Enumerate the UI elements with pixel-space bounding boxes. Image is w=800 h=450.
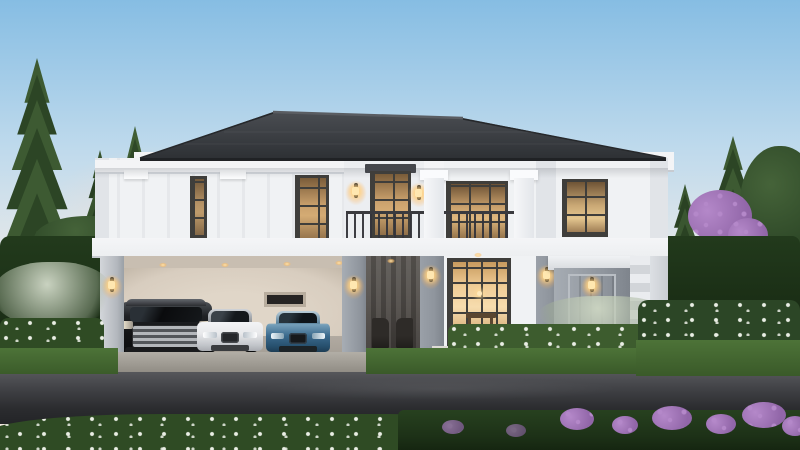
entrance-sconce xyxy=(425,266,437,288)
carport-roof-band xyxy=(92,238,668,258)
porch-chair xyxy=(396,318,413,348)
wall-sconce-light xyxy=(350,182,362,204)
sedan-headlight xyxy=(271,333,284,339)
porch-chair xyxy=(372,318,389,348)
upper-window-narrow xyxy=(190,176,207,240)
side-door-sconce xyxy=(586,276,598,298)
sedan-headlight xyxy=(203,332,217,338)
white-flowering-shrubs-right xyxy=(638,300,800,340)
carport-pillar-lantern xyxy=(348,276,360,298)
hipped-roof xyxy=(124,100,680,162)
plume-grass-left xyxy=(0,262,112,326)
sedan-grille xyxy=(289,333,307,344)
carport-ceiling-downlight xyxy=(220,262,230,268)
purple-flower-cluster xyxy=(506,424,526,437)
van-chrome-grille xyxy=(132,325,202,348)
purple-flower-cluster xyxy=(442,420,464,434)
purple-flower-cluster xyxy=(652,406,692,430)
pendant-light-silhouette xyxy=(477,291,482,296)
purple-flower-cluster xyxy=(560,408,594,430)
foreground-grass-white-flowers xyxy=(0,414,424,450)
lawn-left xyxy=(0,348,118,374)
road-sheen xyxy=(260,378,620,400)
purple-flower-cluster xyxy=(742,402,786,428)
purple-flower-cluster xyxy=(612,416,638,434)
sedan-headlight xyxy=(312,333,325,339)
carport-ceiling-downlight xyxy=(282,261,292,267)
sedan-grille xyxy=(221,332,239,343)
upper-window-left-wing xyxy=(295,175,329,246)
carport-ceiling-downlight xyxy=(158,262,168,268)
scene-luxury-house-render xyxy=(0,0,800,450)
lawn-right xyxy=(636,340,800,376)
carport-back-window xyxy=(264,292,306,307)
purple-flower-cluster xyxy=(706,414,736,434)
sedan-headlight xyxy=(243,332,257,338)
porch-downlight xyxy=(386,258,396,264)
upper-window-right-wing xyxy=(562,179,608,237)
